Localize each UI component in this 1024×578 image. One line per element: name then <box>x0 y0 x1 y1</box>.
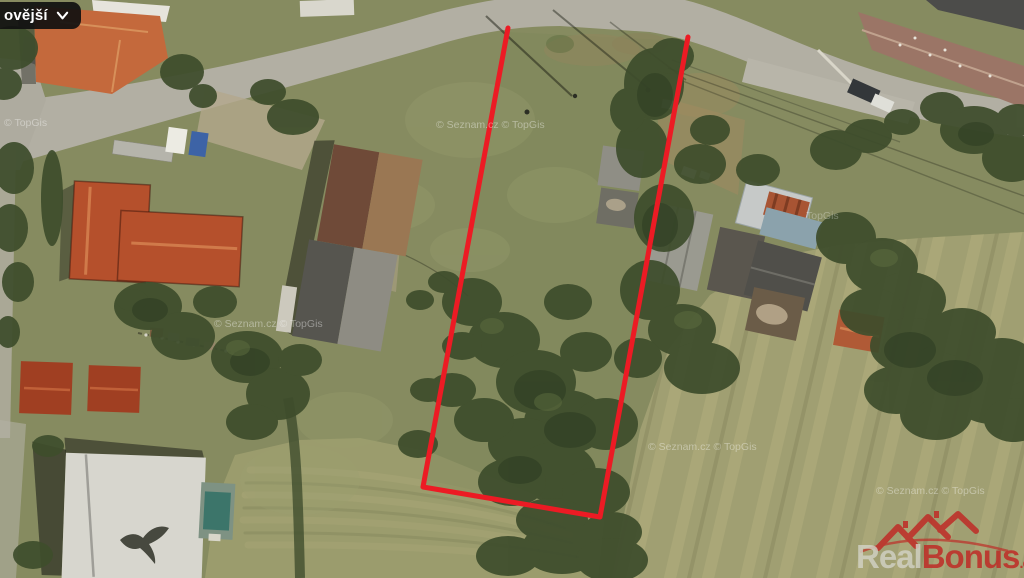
blue-car <box>188 131 208 157</box>
watermark: TopGis <box>806 210 839 222</box>
white-shed <box>300 0 355 17</box>
watermark: © Seznam.cz © TopGis <box>648 441 757 453</box>
pool-structure <box>198 482 235 542</box>
chevron-down-icon <box>55 8 70 23</box>
white-hall <box>28 437 207 578</box>
watermark: © Seznam.cz © TopGis <box>876 485 985 497</box>
watermark: © Seznam.cz © TopGis <box>214 318 323 330</box>
aerial-imagery: © TopGis © Seznam.cz © TopGis © Seznam.c… <box>0 0 1024 578</box>
imagery-version-dropdown[interactable]: ovější <box>0 2 81 29</box>
watermark: © TopGis <box>4 117 47 129</box>
white-van <box>165 127 187 154</box>
brand-text: RealBonus.cz <box>856 538 1024 575</box>
imagery-version-label: ovější <box>4 7 48 24</box>
satellite-map-view[interactable]: © TopGis © Seznam.cz © TopGis © Seznam.c… <box>0 0 1024 578</box>
watermark: © Seznam.cz © TopGis <box>436 119 545 131</box>
